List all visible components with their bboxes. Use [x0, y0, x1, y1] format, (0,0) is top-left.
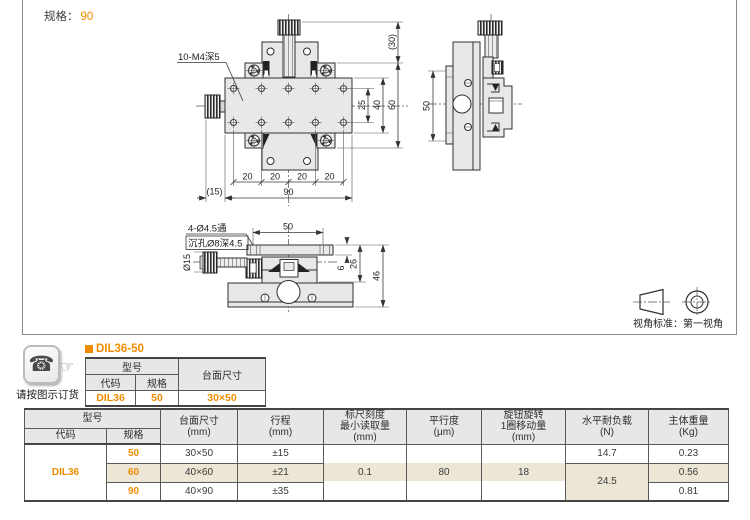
spec-header-stroke: 行程 (mm): [238, 409, 324, 444]
knob-diameter-label: Ø15: [182, 254, 192, 271]
part-table-header-row-1: 型号 台面尺寸: [86, 358, 266, 375]
part-number-title: DIL36-50: [85, 343, 144, 355]
part-number-table: 型号 台面尺寸 代码 规格 DIL36 50 30×50: [85, 357, 266, 407]
spec-header-size: 台面尺寸 (mm): [161, 409, 238, 444]
spec-60-spec: 60: [107, 463, 161, 482]
spec-90-spec: 90: [107, 482, 161, 501]
spec-code: DIL36: [25, 444, 107, 501]
dim-knob-height: (30): [387, 34, 397, 50]
spec-60-90-load: 24.5: [566, 463, 649, 501]
dim-hole-span-inner: 25: [357, 100, 367, 110]
part-number-title-text: DIL36-50: [96, 343, 144, 355]
dim-hole-span-outer: 40: [372, 100, 382, 110]
part-header-code: 代码: [86, 375, 136, 391]
dim-body-width: 60: [387, 100, 397, 110]
dim-pitch-1: 20: [242, 172, 252, 182]
spec-60-weight: 0.56: [649, 463, 729, 482]
part-code: DIL36: [86, 391, 136, 407]
spec-90-size: 40×90: [161, 482, 238, 501]
hole-callout-line2: 沉孔Ø8深4.5: [188, 239, 242, 250]
spec-min-reading: 0.1: [324, 444, 407, 501]
spec-50-weight: 0.23: [649, 444, 729, 463]
spec-header-weight: 主体重量 (Kg): [649, 409, 729, 444]
spec-header-code: 代码: [25, 429, 107, 444]
part-table-value-row: DIL36 50 30×50: [86, 391, 266, 407]
spec-per-turn: 18: [482, 444, 566, 501]
thread-callout-label: 10-M4深5: [178, 52, 220, 63]
spec-50-size: 30×50: [161, 444, 238, 463]
dim-pitch-2: 20: [270, 172, 280, 182]
spec-header-load: 水平耐负载 (N): [566, 409, 649, 444]
side-view: 50: [422, 14, 523, 170]
spec-header-min-reading: 标尺刻度 最小读取量 (mm): [324, 409, 407, 444]
part-header-model: 型号: [86, 358, 179, 375]
spec-50-load: 14.7: [566, 444, 649, 463]
dim-mid-height: 26: [349, 259, 359, 269]
spec-50-stroke: ±15: [238, 444, 324, 463]
technical-drawing: 10-M4深5 (30) 60 40 25 20 20 20 20 90 (15…: [0, 0, 750, 340]
orange-square-bullet: [85, 345, 93, 353]
dim-total-height: 46: [372, 271, 382, 281]
spec-row-50: DIL36 50 30×50 ±15 0.1 80 18 14.7 0.23: [25, 444, 729, 463]
spec-90-stroke: ±35: [238, 482, 324, 501]
spec-90-weight: 0.81: [649, 482, 729, 501]
view-standard-label: 视角标准：第一视角: [633, 317, 723, 330]
part-header-size: 台面尺寸: [179, 358, 266, 391]
spec-header-per-turn: 旋钮旋转 1圈移动量 (mm): [482, 409, 566, 444]
part-spec: 50: [136, 391, 179, 407]
spec-header-row-1: 型号 台面尺寸 (mm) 行程 (mm) 标尺刻度 最小读取量 (mm) 平行度…: [25, 409, 729, 429]
pointing-hand-icon: ☞: [60, 357, 74, 377]
top-view: 10-M4深5 (30) 60 40 25 20 20 20 20 90 (15…: [177, 14, 408, 206]
spec-60-size: 40×60: [161, 463, 238, 482]
dim-pitch-4: 20: [324, 172, 334, 182]
part-size: 30×50: [179, 391, 266, 407]
spec-parallelism: 80: [407, 444, 482, 501]
drawing-frame: [23, 0, 737, 335]
dim-plate-thickness: 6: [336, 265, 346, 270]
dim-table-span: 50: [283, 222, 293, 232]
first-angle-symbol: 视角标准：第一视角: [633, 287, 723, 330]
order-caption: 请按图示订货: [16, 387, 96, 402]
spec-table: 型号 台面尺寸 (mm) 行程 (mm) 标尺刻度 最小读取量 (mm) 平行度…: [24, 408, 729, 502]
dim-knob-offset: (15): [206, 187, 222, 197]
hole-callout-line1: 4-Ø4.5通: [188, 224, 227, 235]
dim-pitch-3: 20: [297, 172, 307, 182]
spec-60-stroke: ±21: [238, 463, 324, 482]
catalog-page: { "colors": {"accent_orange": "#f08c00",…: [0, 0, 750, 520]
part-header-spec: 规格: [136, 375, 179, 391]
order-phone-icon: ☎: [23, 345, 60, 384]
dim-side-height: 50: [422, 101, 432, 111]
spec-header-model: 型号: [25, 409, 161, 429]
spec-header-spec: 规格: [107, 429, 161, 444]
dim-total-width: 90: [283, 187, 293, 197]
spec-header-parallelism: 平行度 (μm): [407, 409, 482, 444]
front-view: Ø15 4-Ø4.5通 沉孔Ø8深4.5 50 6 26 46: [182, 222, 389, 315]
spec-50-spec: 50: [107, 444, 161, 463]
telephone-icon: ☎: [28, 354, 54, 375]
